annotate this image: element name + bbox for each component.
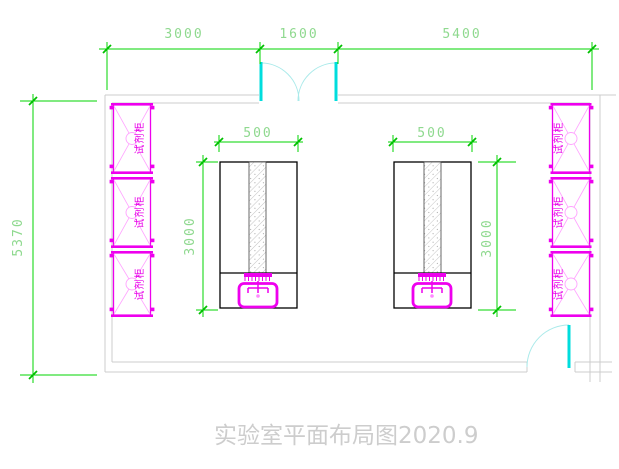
dim-top-right: 5400	[427, 27, 497, 43]
cabinet-left-2-label: 试剂柜	[135, 192, 147, 232]
dimension-lines	[20, 42, 599, 383]
dim-bench-left-depth: 3000	[183, 201, 199, 271]
dim-overall-height: 5370	[11, 202, 27, 272]
door-swing-arc	[261, 63, 299, 101]
single-door-bottom-right	[527, 325, 569, 368]
dim-top-door: 1600	[264, 27, 334, 43]
door-swing-arc	[298, 63, 336, 101]
bench-reagent-shelf	[249, 162, 266, 273]
cabinet-right-1-label: 试剂柜	[554, 118, 566, 158]
door-swing-arc	[527, 325, 569, 367]
bench-reagent-shelf	[424, 162, 441, 273]
cabinet-left-1-label: 试剂柜	[135, 118, 147, 158]
cabinet-left-3	[110, 251, 155, 317]
drawing-title: 实验室平面布局图2020.9	[214, 416, 470, 450]
cabinet-left-2	[110, 177, 155, 248]
drain	[430, 294, 434, 298]
room-walls	[105, 95, 616, 382]
double-door-top	[261, 62, 336, 101]
dim-top-left: 3000	[149, 27, 219, 43]
cabinet-left-1	[110, 103, 155, 174]
dim-bench-right-depth: 3000	[480, 203, 496, 273]
floorplan-canvas: 3000 1600 5400 5370 500 3000 500 3000 试剂…	[0, 0, 619, 469]
cabinet-right-2-label: 试剂柜	[554, 192, 566, 232]
dim-bench-left-width: 500	[223, 126, 293, 142]
cabinet-right-3-label: 试剂柜	[554, 264, 566, 304]
drain	[256, 294, 260, 298]
cabinet-left-3-label: 试剂柜	[135, 264, 147, 304]
floorplan-linework	[0, 0, 619, 469]
dim-bench-right-width: 500	[397, 126, 467, 142]
